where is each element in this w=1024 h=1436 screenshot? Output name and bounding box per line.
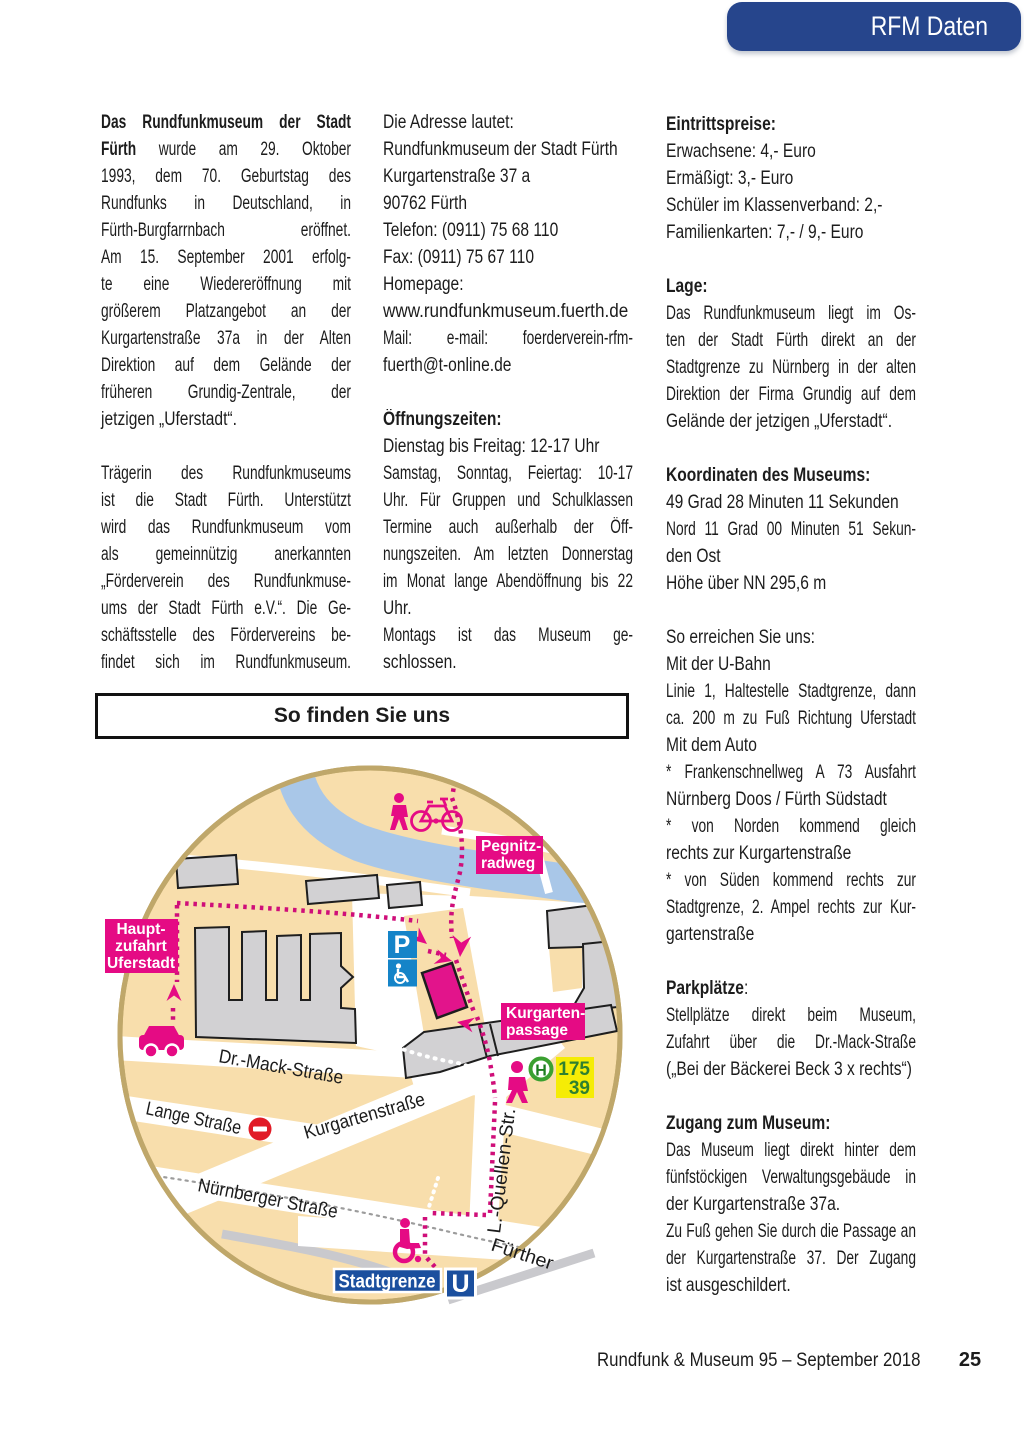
svg-text:Stadtgrenze: Stadtgrenze	[339, 1272, 436, 1293]
svg-text:H: H	[535, 1063, 547, 1080]
svg-text:radweg: radweg	[481, 855, 535, 872]
svg-text:Pegnitz-: Pegnitz-	[481, 838, 541, 855]
svg-text:Kurgarten-: Kurgarten-	[506, 1005, 585, 1022]
svg-text:P: P	[394, 931, 411, 959]
svg-text:zufahrt: zufahrt	[115, 938, 167, 955]
svg-text:39: 39	[569, 1078, 590, 1099]
svg-text:Uferstadt: Uferstadt	[107, 955, 175, 972]
svg-text:Haupt-: Haupt-	[116, 921, 165, 938]
svg-text:U: U	[451, 1270, 469, 1298]
svg-text:175: 175	[558, 1059, 590, 1080]
svg-text:passage: passage	[506, 1022, 568, 1039]
